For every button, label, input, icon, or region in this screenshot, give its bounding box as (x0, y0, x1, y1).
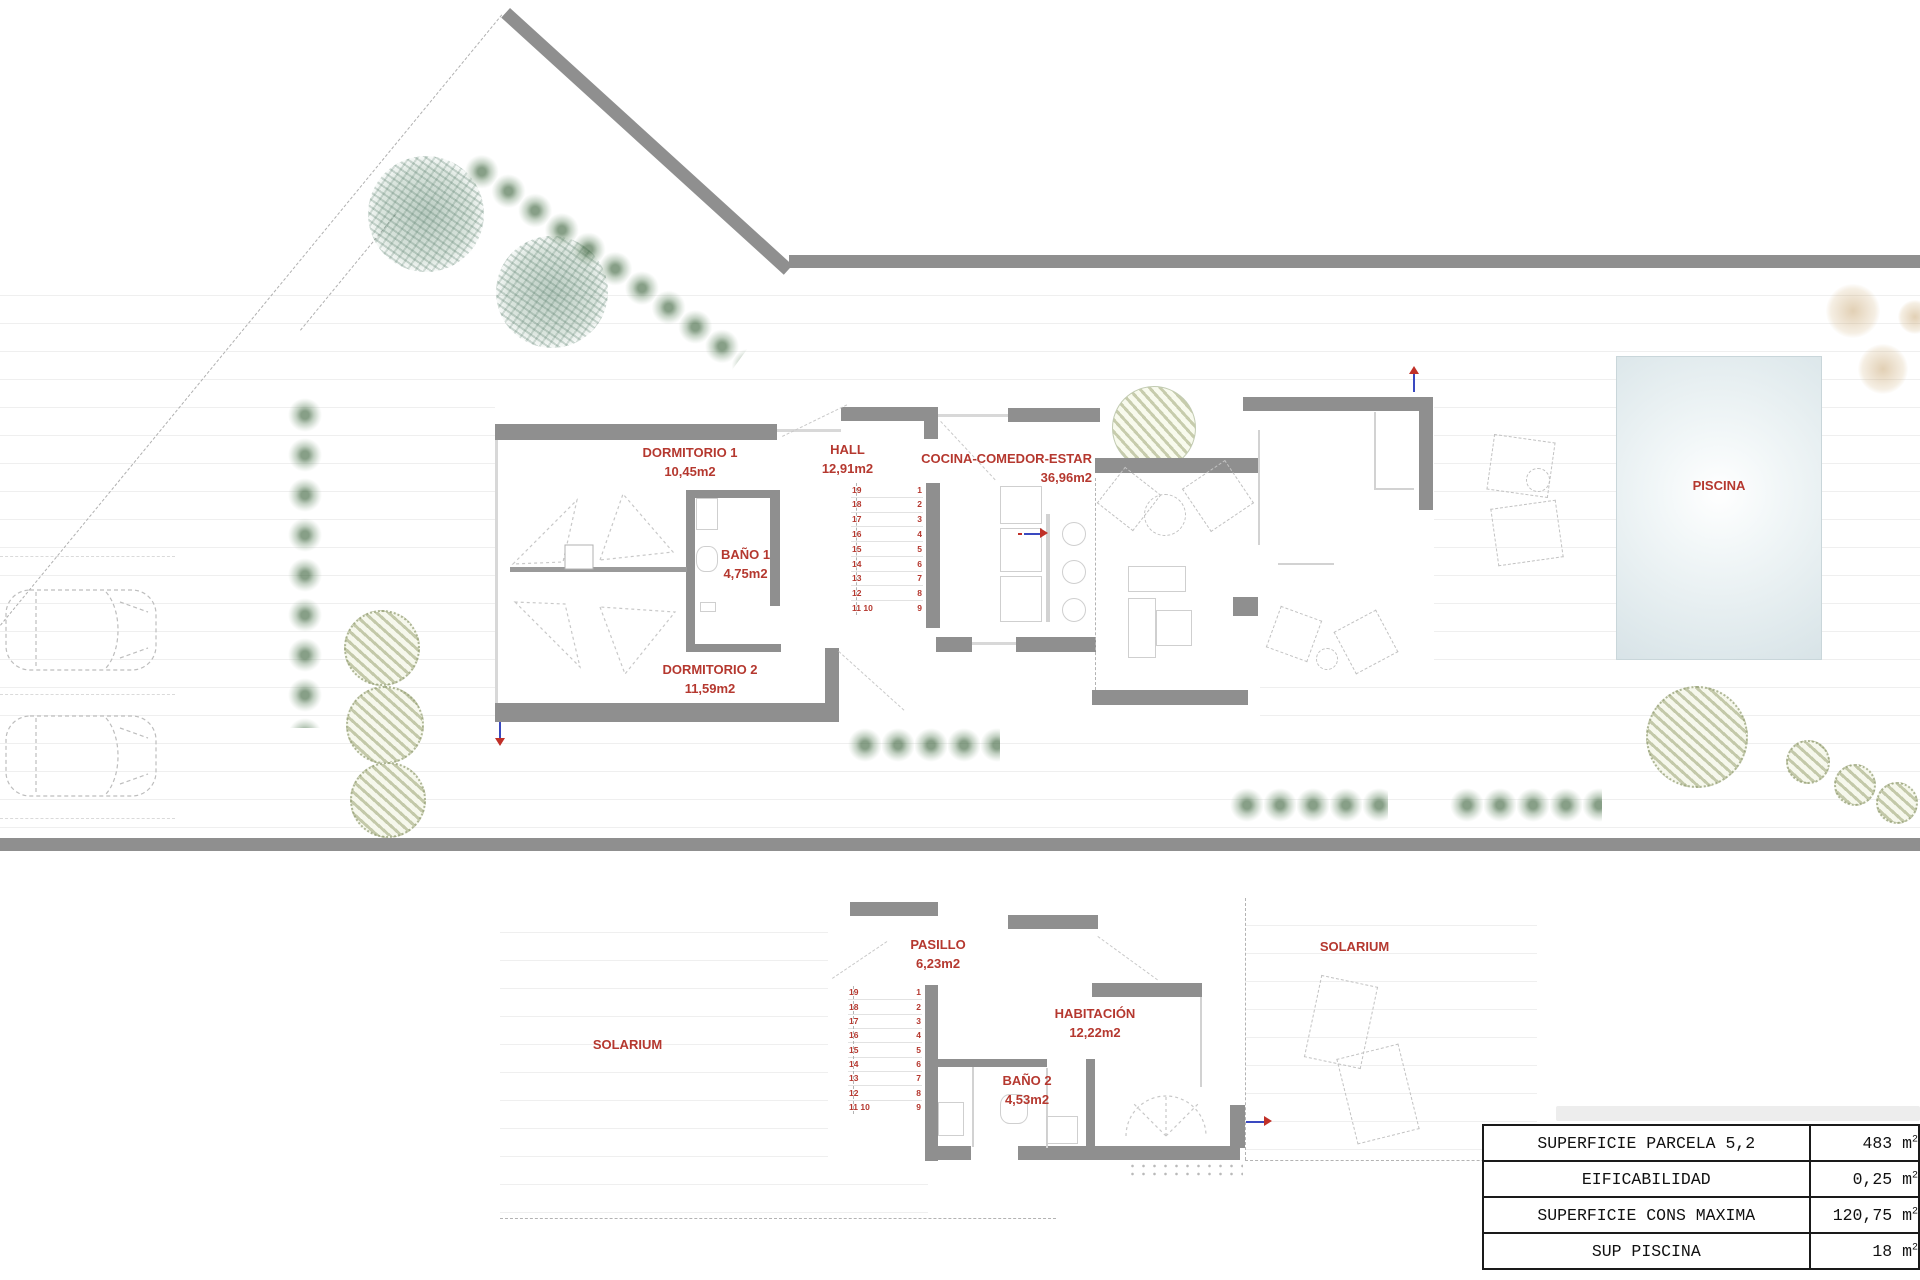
bathroom-fixture (696, 498, 718, 530)
room-name: SOLARIUM (593, 1037, 662, 1052)
car-icon (2, 580, 162, 685)
wall-segment (1092, 983, 1202, 997)
wall-segment (1230, 1105, 1245, 1148)
entry-arrow-icon (1246, 1116, 1278, 1128)
room-label-dormitorio2: DORMITORIO 2 11,59m2 (615, 661, 805, 699)
stair-number: 7 (917, 574, 922, 583)
window-line (495, 440, 498, 703)
bathroom-fixture (938, 1102, 964, 1136)
table-row-label: SUPERFICIE PARCELA 5,2 (1483, 1125, 1810, 1161)
table-row-value: 483 m2 (1810, 1125, 1919, 1161)
staircase: 191 182 173 164 155 146 137 128 11 109 (848, 986, 922, 1114)
table-round (1316, 648, 1338, 670)
stair-step: 164 (851, 526, 923, 541)
wall-segment (686, 490, 778, 498)
room-name: HABITACIÓN (1055, 1006, 1136, 1021)
room-area: 10,45m2 (595, 463, 785, 482)
table-row-value: 120,75 m2 (1810, 1197, 1919, 1233)
room-label-dormitorio1: DORMITORIO 1 10,45m2 (595, 444, 785, 482)
stair-number: 2 (917, 500, 922, 509)
stool (1062, 598, 1086, 622)
room-area: 11,59m2 (615, 680, 805, 699)
plan-boundary-dashed (500, 1218, 1056, 1219)
room-area: 4,53m2 (972, 1091, 1082, 1110)
window-line (972, 642, 1016, 645)
stair-center-line (853, 986, 854, 1114)
stair-number: 8 (917, 589, 922, 598)
sofa (1128, 566, 1186, 592)
tree (1876, 782, 1918, 824)
wall-segment (1095, 458, 1258, 473)
staircase: 191 182 173 164 155 146 137 128 11 109 (851, 483, 923, 615)
wall-segment (925, 1146, 971, 1160)
wall-segment (926, 483, 940, 628)
room-name: PASILLO (910, 937, 965, 952)
bathroom-fixture (700, 602, 716, 612)
wall-segment (1086, 1059, 1095, 1151)
room-name: HALL (830, 442, 865, 457)
wall-segment (686, 644, 781, 652)
wall-segment (1233, 597, 1258, 616)
stair-number: 4 (916, 1031, 921, 1040)
wall-segment (1092, 690, 1248, 705)
table-row: SUP PISCINA 18 m2 (1483, 1233, 1919, 1269)
stair-number: 3 (917, 515, 922, 524)
sofa (1128, 598, 1156, 658)
table-row-label: SUPERFICIE CONS MAXIMA (1483, 1197, 1810, 1233)
tree (346, 686, 424, 764)
summary-table: SUPERFICIE PARCELA 5,2 483 m2 EIFICABILI… (1482, 1124, 1920, 1270)
stair-number: 1 (916, 988, 921, 997)
window-line (777, 429, 841, 432)
kitchen-appliance (1000, 486, 1042, 524)
partition-line (1200, 997, 1202, 1087)
stair-number: 8 (916, 1089, 921, 1098)
stair-step: 155 (851, 541, 923, 556)
tree (1646, 686, 1748, 788)
partition-line (1374, 488, 1414, 490)
shrub (1858, 344, 1908, 394)
table-row-label: SUP PISCINA (1483, 1233, 1810, 1269)
room-area: 6,23m2 (893, 955, 983, 974)
hedge (288, 398, 324, 728)
table-row: SUPERFICIE PARCELA 5,2 483 m2 (1483, 1125, 1919, 1161)
stair-step: 182 (848, 999, 922, 1013)
kitchen-appliance (1000, 576, 1042, 622)
stair-step: 11 109 (848, 1100, 922, 1114)
stair-number: 7 (916, 1074, 921, 1083)
stair-number: 2 (916, 1003, 921, 1012)
stool (1062, 560, 1086, 584)
window-line (938, 414, 1008, 417)
tree (1834, 764, 1876, 806)
stair-number: 6 (917, 560, 922, 569)
shrub (1826, 284, 1880, 338)
room-label-piscina: PISCINA (1669, 477, 1769, 496)
stair-step: 182 (851, 497, 923, 512)
room-name: PISCINA (1693, 478, 1746, 493)
stair-step: 191 (848, 986, 922, 999)
porch-floor (1243, 397, 1434, 662)
stair-number: 5 (916, 1046, 921, 1055)
partition-line (1258, 430, 1260, 545)
bed-sketch (1118, 1090, 1213, 1145)
pergola-dots (1127, 1162, 1243, 1180)
wall-segment (938, 1059, 1047, 1067)
room-name: DORMITORIO 1 (642, 445, 737, 460)
parking-line (0, 818, 175, 819)
stair-step: 137 (848, 1071, 922, 1085)
wall-segment (925, 985, 938, 1161)
stair-step: 146 (848, 1057, 922, 1071)
room-label-solarium-left: SOLARIUM (575, 1036, 680, 1055)
stair-number: 4 (917, 530, 922, 539)
tree (350, 762, 426, 838)
room-area: 12,22m2 (1005, 1024, 1185, 1043)
wall-segment (1419, 397, 1433, 510)
table-row: SUPERFICIE CONS MAXIMA 120,75 m2 (1483, 1197, 1919, 1233)
stair-step: 173 (851, 512, 923, 527)
stair-step: 128 (848, 1085, 922, 1099)
hedge (848, 728, 1000, 762)
hedge (1450, 788, 1602, 824)
stair-step: 11 109 (851, 600, 923, 615)
room-name: BAÑO 2 (1002, 1073, 1051, 1088)
floor-plan-canvas: 191 182 173 164 155 146 137 128 11 109 (0, 0, 1920, 1280)
entry-arrow-icon (494, 722, 506, 748)
stair-number: 3 (916, 1017, 921, 1026)
wall-segment (924, 407, 938, 439)
table-row-label: EIFICABILIDAD (1483, 1161, 1810, 1197)
room-area: 36,96m2 (874, 469, 1092, 488)
stair-number: 9 (916, 1103, 921, 1112)
room-area: 4,75m2 (693, 565, 798, 584)
lounge-chair (1490, 500, 1563, 567)
pool (1616, 356, 1822, 660)
table-row-value: 18 m2 (1810, 1233, 1919, 1269)
room-label-cocina: COCINA-COMEDOR-ESTAR 36,96m2 (874, 450, 1092, 488)
stool (1062, 522, 1086, 546)
room-label-solarium-right: SOLARIUM (1302, 938, 1407, 957)
table-row: EIFICABILIDAD 0,25 m2 (1483, 1161, 1919, 1197)
stair-step: 137 (851, 571, 923, 586)
stair-number: 5 (917, 545, 922, 554)
partition-line (1374, 412, 1376, 490)
parking-line (0, 694, 175, 695)
wall-segment (825, 648, 839, 722)
wall-segment (1008, 915, 1098, 929)
room-name: SOLARIUM (1320, 939, 1389, 954)
coffee-table (1156, 610, 1192, 646)
room-boundary-dashed (1095, 478, 1096, 690)
parking-line (0, 556, 175, 557)
stair-step: 146 (851, 556, 923, 571)
room-label-bano1: BAÑO 1 4,75m2 (693, 546, 798, 584)
table-round (1526, 468, 1550, 492)
stair-step: 155 (848, 1042, 922, 1056)
tree (1786, 740, 1830, 784)
room-label-pasillo: PASILLO 6,23m2 (893, 936, 983, 974)
stair-step: 173 (848, 1014, 922, 1028)
stair-step: 128 (851, 585, 923, 600)
wall-segment (1018, 1146, 1240, 1160)
stair-number: 9 (917, 604, 922, 613)
boundary-wall-bottom (0, 838, 1920, 851)
stair-step: 164 (848, 1028, 922, 1042)
room-label-bano2: BAÑO 2 4,53m2 (972, 1072, 1082, 1110)
kitchen-arrow-icon (1018, 528, 1050, 540)
wall-segment (936, 637, 972, 652)
wall-segment (1016, 637, 1096, 652)
room-name: BAÑO 1 (721, 547, 770, 562)
wall-segment (1243, 397, 1433, 411)
boundary-wall-top (789, 255, 1920, 268)
table-round (1144, 494, 1186, 536)
room-label-habitacion: HABITACIÓN 12,22m2 (1005, 1005, 1185, 1043)
stair-center-line (856, 483, 857, 615)
entry-arrow-icon (1408, 366, 1420, 394)
table-row-value: 0,25 m2 (1810, 1161, 1919, 1197)
scan-artifact (1556, 1106, 1920, 1121)
tree (344, 610, 420, 686)
shower (1046, 1116, 1078, 1144)
car-icon (2, 706, 162, 811)
room-name: DORMITORIO 2 (662, 662, 757, 677)
wall-segment (850, 902, 938, 916)
stair-number: 6 (916, 1060, 921, 1069)
wall-segment (495, 424, 777, 440)
wall-segment (1008, 408, 1100, 422)
room-name: COCINA-COMEDOR-ESTAR (921, 451, 1092, 466)
partition-line (1278, 563, 1334, 565)
hedge (1230, 788, 1388, 824)
